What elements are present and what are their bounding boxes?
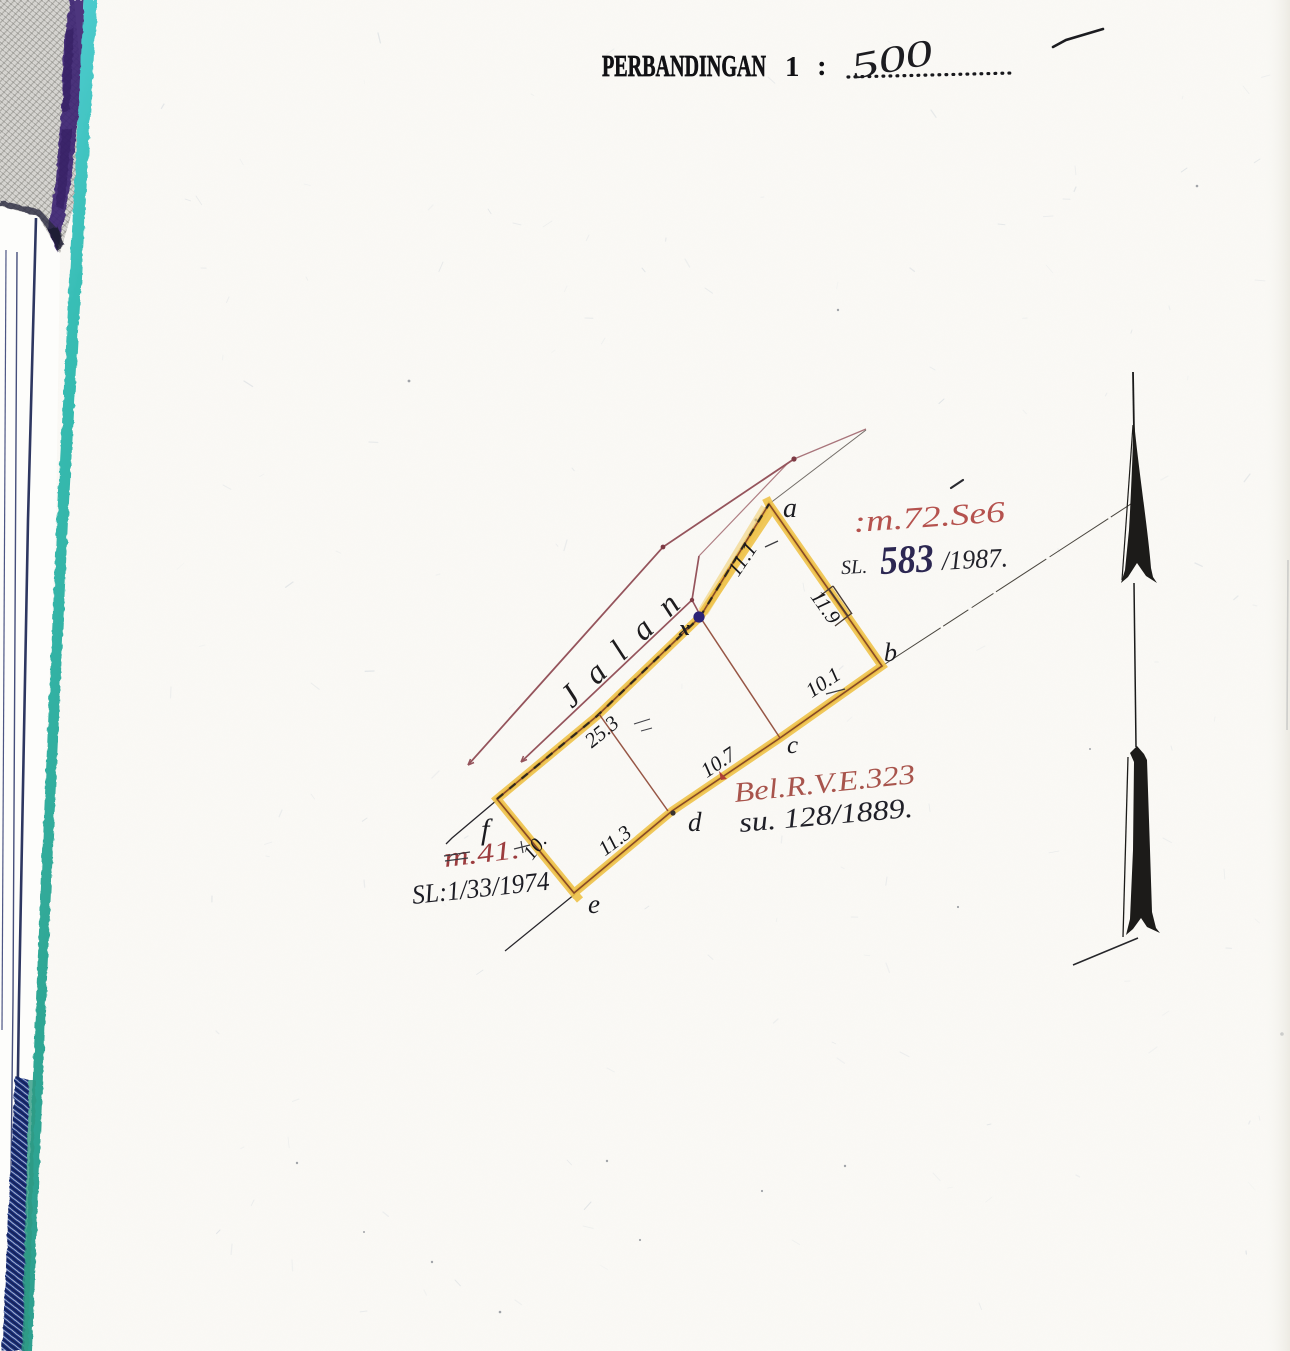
svg-text:SL.: SL.: [841, 556, 868, 579]
svg-text:c: c: [787, 732, 798, 759]
svg-text:d: d: [688, 807, 702, 837]
svg-text:1: 1: [785, 51, 800, 83]
svg-text:x: x: [678, 615, 690, 640]
svg-text:b: b: [884, 638, 897, 667]
svg-text:/1987.: /1987.: [939, 542, 1008, 576]
svg-text:583: 583: [879, 535, 935, 583]
svg-text:a: a: [783, 493, 797, 524]
svg-text::: :: [817, 50, 827, 82]
svg-text:PERBANDINGAN: PERBANDINGAN: [602, 48, 766, 83]
svg-text:e: e: [588, 889, 600, 919]
